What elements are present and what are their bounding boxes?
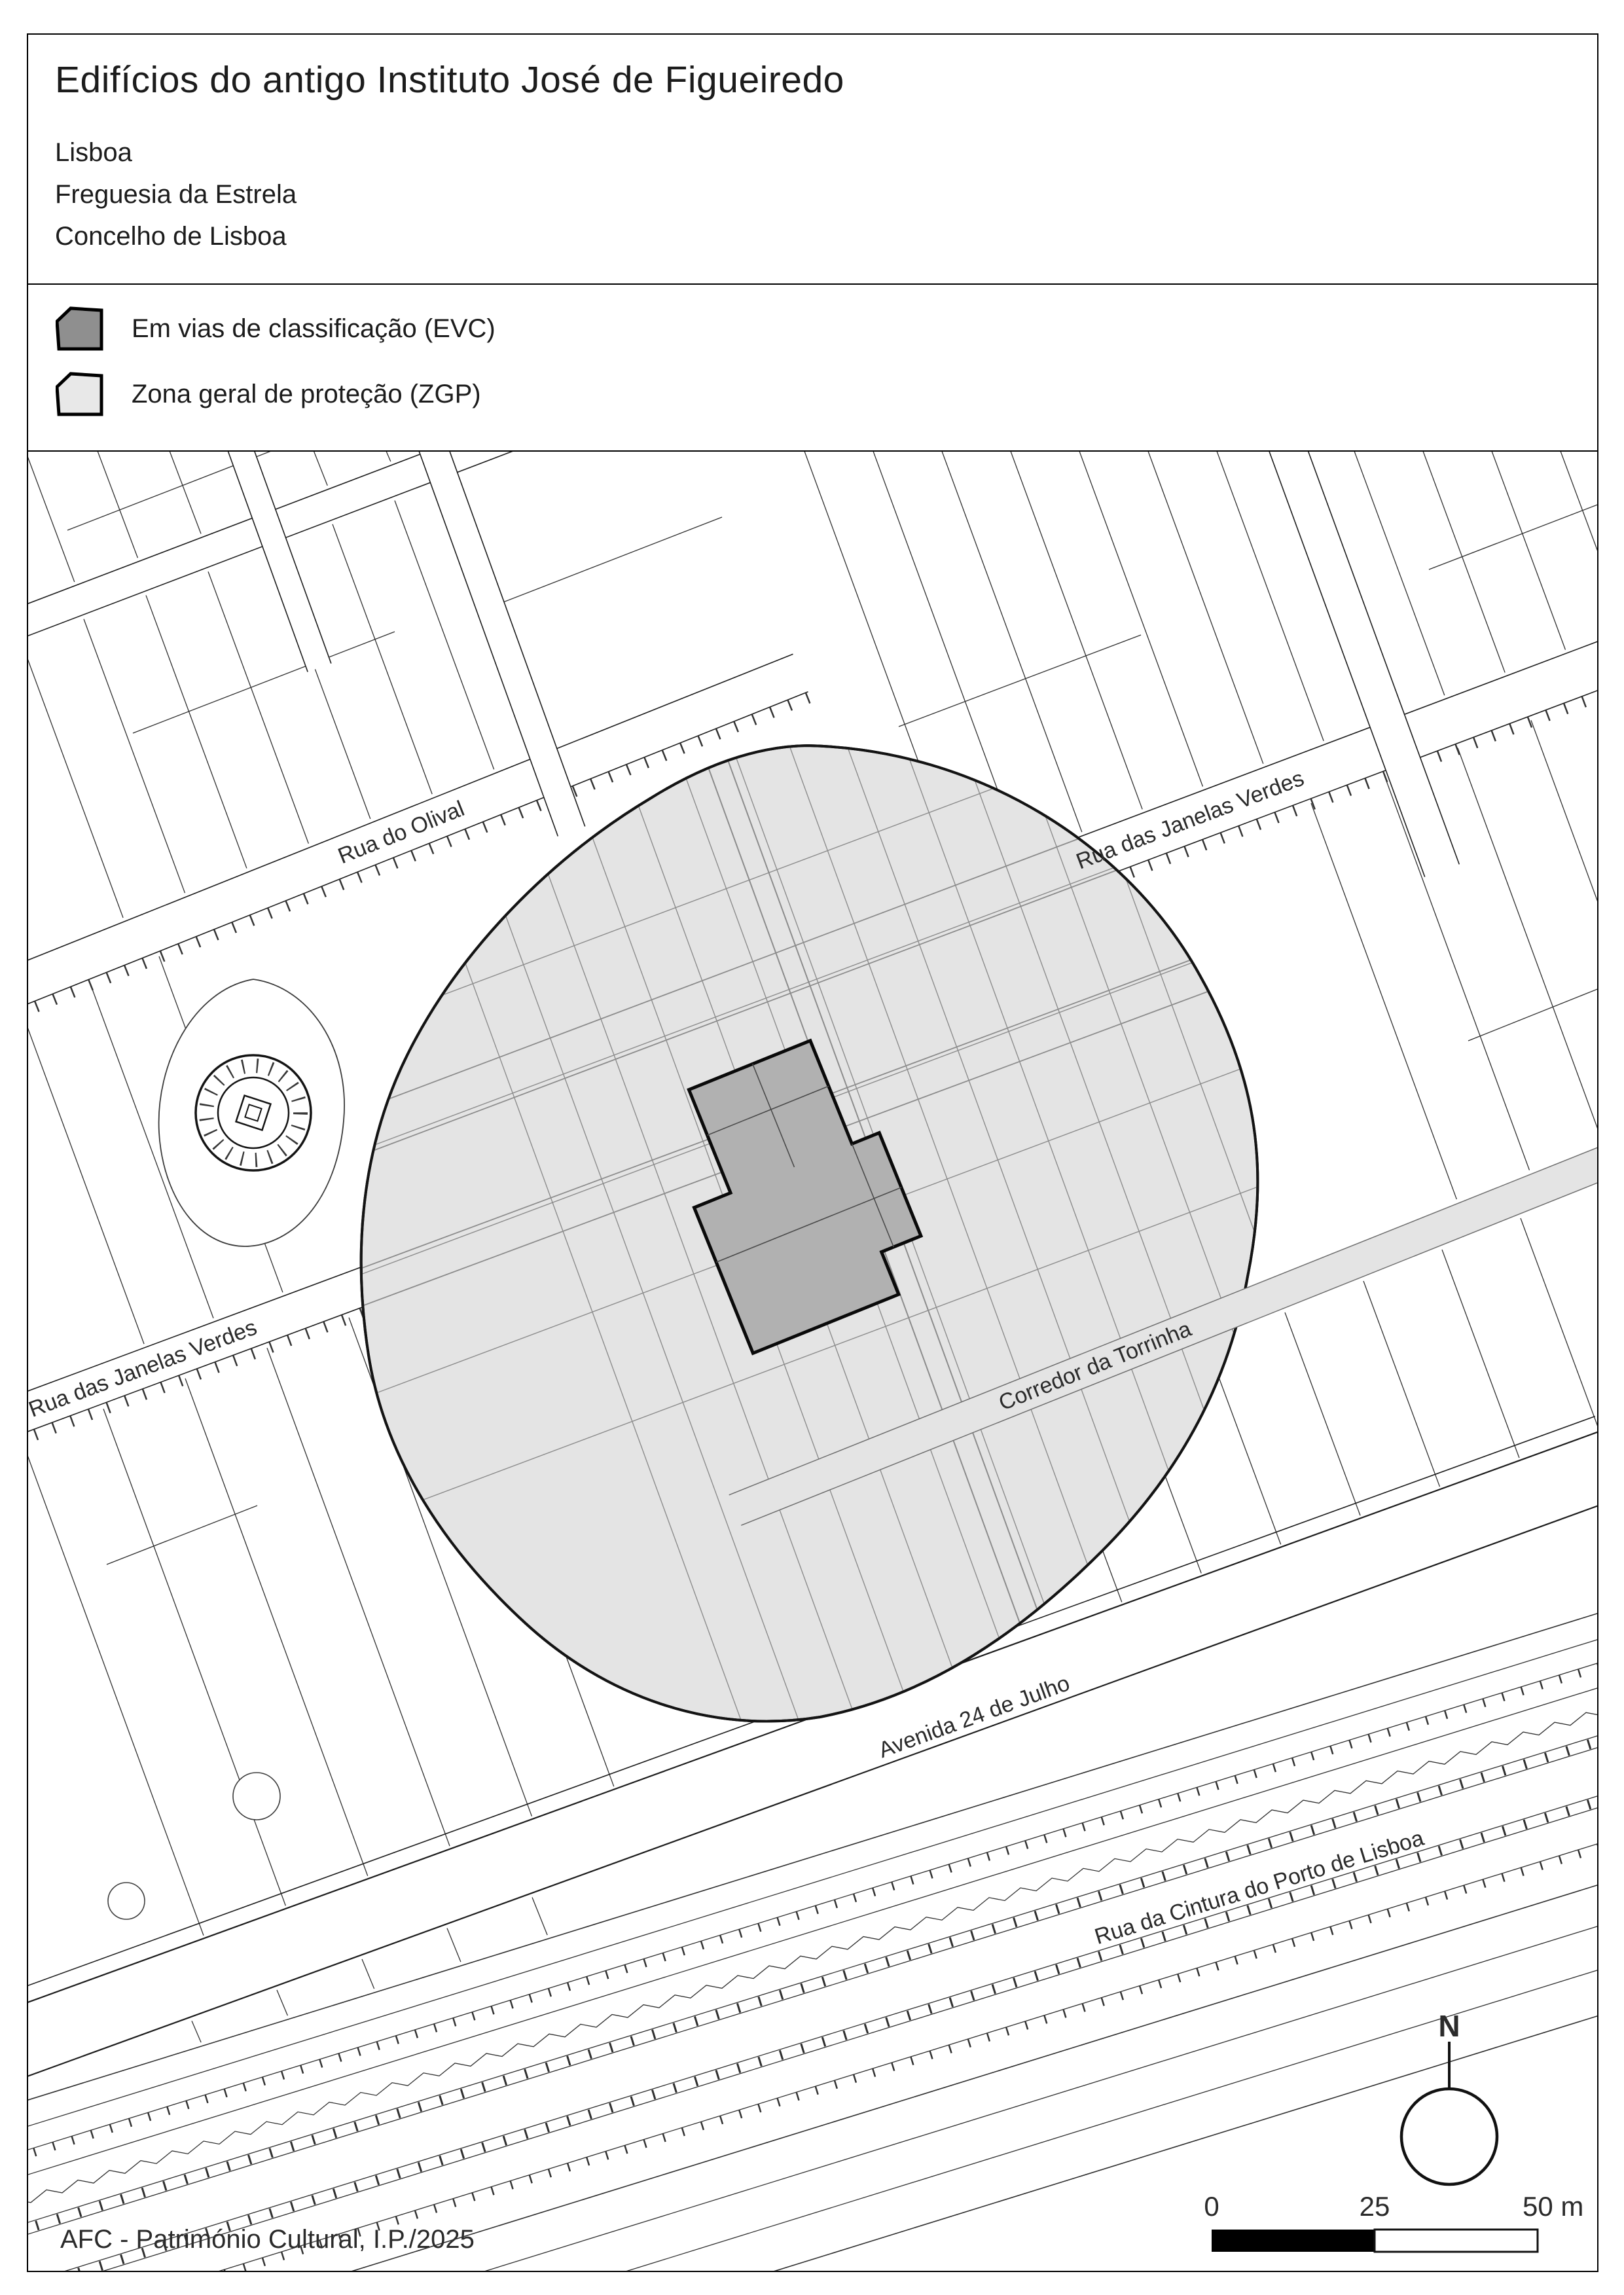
scale-bar-white-segment — [1375, 2230, 1538, 2252]
legend-item-evc: Em vias de classificação (EVC) — [56, 306, 496, 351]
scale-tick-25: 25 — [1360, 2191, 1390, 2222]
scale-tick-50m: 50 m — [1523, 2191, 1583, 2222]
street-label-janelas-verdes-ne: Rua das Janelas Verdes — [1073, 766, 1307, 875]
attribution-text: AFC - Património Cultural, I.P./2025 — [60, 2225, 475, 2254]
scale-bar: 0 25 50 m — [1204, 2191, 1583, 2252]
legend-item-zgp: Zona geral de proteção (ZGP) — [56, 372, 481, 416]
subtitle-city: Lisboa — [55, 132, 297, 173]
subtitle-parish: Freguesia da Estrela — [55, 173, 297, 215]
garden-circle — [108, 1883, 145, 1919]
street-label-janelas-verdes-w: Rua das Janelas Verdes — [28, 1315, 261, 1422]
north-arrow: N — [1401, 2009, 1497, 2184]
cadastral-map: Rua do Olival Rua das Janelas Verdes Rua… — [28, 452, 1597, 2271]
legend-label-evc: Em vias de classificação (EVC) — [132, 314, 496, 344]
legend-label-zgp: Zona geral de proteção (ZGP) — [132, 380, 481, 409]
evc-swatch-icon — [56, 306, 104, 351]
street-label-cintura-porto: Rua da Cintura do Porto de Lisboa — [1092, 1826, 1427, 1949]
location-block: Lisboa Freguesia da Estrela Concelho de … — [55, 132, 297, 257]
scale-bar-black-segment — [1212, 2230, 1375, 2252]
zgp-swatch-shape — [57, 374, 101, 414]
garden-feature — [108, 979, 344, 1919]
roundabout — [233, 1773, 280, 1820]
page-title: Edifícios do antigo Instituto José de Fi… — [55, 58, 844, 101]
header-separator — [28, 283, 1597, 285]
document-page: Edifícios do antigo Instituto José de Fi… — [0, 0, 1624, 2295]
map-area: Rua do Olival Rua das Janelas Verdes Rua… — [28, 450, 1597, 2271]
scale-tick-0: 0 — [1204, 2191, 1219, 2222]
page-frame: Edifícios do antigo Instituto José de Fi… — [27, 33, 1598, 2272]
north-label: N — [1438, 2009, 1460, 2043]
subtitle-municipality: Concelho de Lisboa — [55, 215, 297, 257]
zgp-swatch-icon — [56, 372, 104, 416]
evc-swatch-shape — [57, 308, 101, 349]
north-arrow-circle — [1401, 2089, 1497, 2184]
